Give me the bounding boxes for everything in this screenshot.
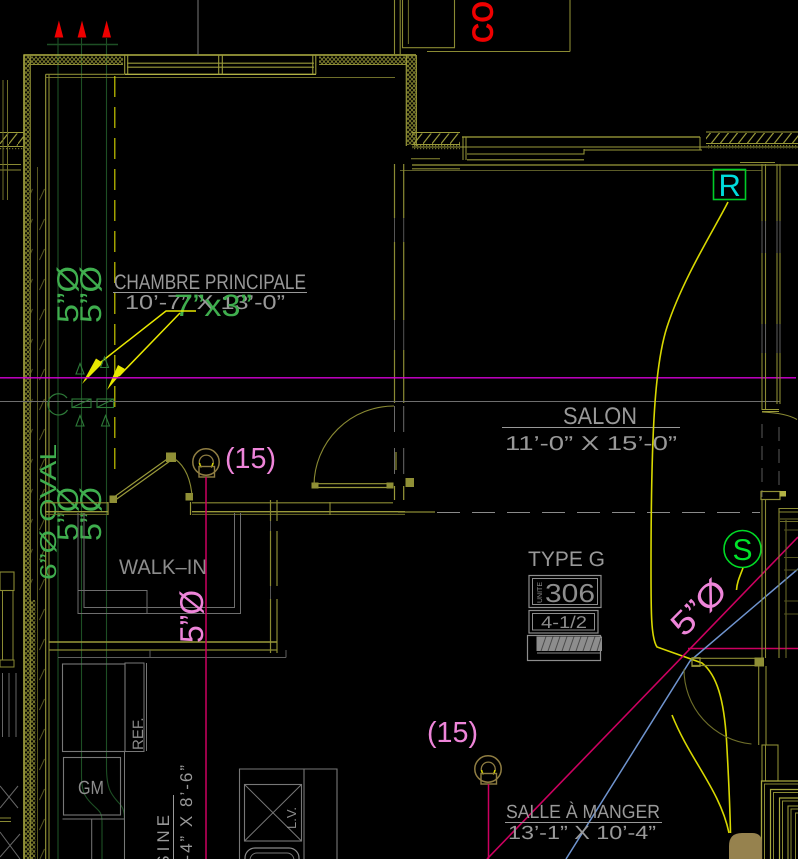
svg-text:L.V.: L.V.	[284, 807, 299, 829]
svg-text:R: R	[719, 168, 741, 203]
svg-text:11’-4” X 8’-6”: 11’-4” X 8’-6”	[177, 763, 196, 859]
svg-text:5”Ø: 5”Ø	[75, 266, 108, 323]
svg-text:5”Ø: 5”Ø	[173, 590, 210, 643]
svg-text:(15): (15)	[225, 443, 276, 475]
svg-text:306: 306	[545, 578, 595, 608]
svg-text:SALON: SALON	[563, 403, 637, 430]
svg-text:(15): (15)	[427, 717, 478, 749]
svg-text:4-1/2: 4-1/2	[541, 613, 587, 632]
svg-text:CO: CO	[467, 1, 500, 43]
svg-text:WALK–IN: WALK–IN	[119, 556, 207, 579]
svg-text:UNITE: UNITE	[537, 582, 544, 603]
svg-text:S: S	[733, 534, 753, 567]
svg-text:CUISINE: CUISINE	[154, 811, 173, 859]
svg-text:7”x3”: 7”x3”	[174, 288, 252, 323]
svg-text:SALLE À MANGER: SALLE À MANGER	[506, 801, 660, 823]
svg-text:REF.: REF.	[130, 717, 147, 750]
svg-text:GM: GM	[78, 778, 104, 799]
svg-text:TYPE G: TYPE G	[528, 548, 605, 571]
svg-text:11’-0” X 15’-0”: 11’-0” X 15’-0”	[505, 433, 677, 455]
svg-text:13’-1” X 10’-4”: 13’-1” X 10’-4”	[508, 823, 656, 844]
